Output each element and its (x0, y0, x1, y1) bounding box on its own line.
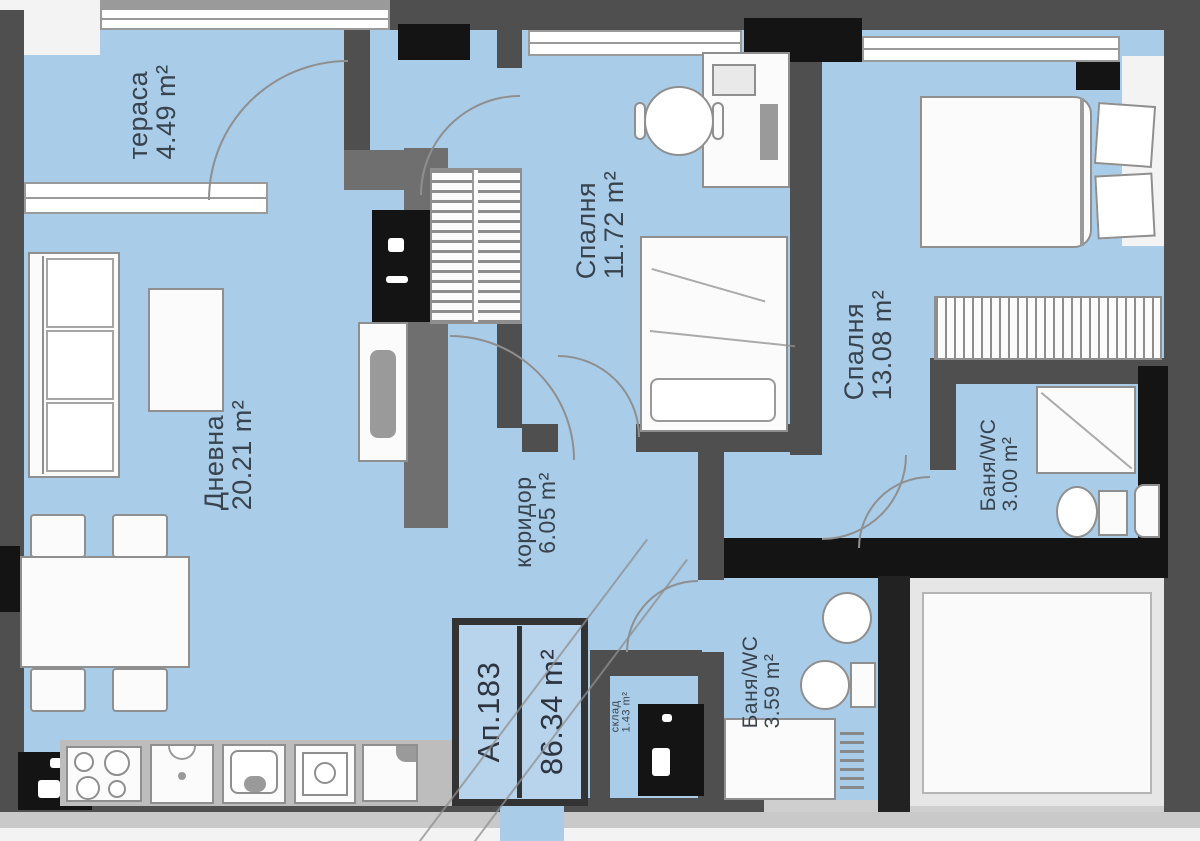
hall-wardrobe-divider (472, 170, 478, 322)
wall-top-band (100, 0, 390, 8)
sink-drain (244, 776, 266, 792)
label-storage: склад 1.43 m² (611, 692, 634, 733)
dining-table (20, 556, 190, 668)
sink-bath1 (1134, 484, 1160, 538)
wall-bedroom1-left-stub (497, 30, 522, 68)
bath2-threshold (840, 732, 864, 794)
terrace-area: 4.49 m² (152, 64, 180, 159)
storage-area: 1.43 m² (622, 692, 633, 733)
outside-bottom-white (0, 828, 1200, 841)
desk-item (760, 104, 778, 160)
shaft-kitchen-mark2 (38, 780, 60, 798)
desk-chair-armrest (712, 102, 724, 140)
dining-chair (112, 668, 168, 712)
wall-storage-left (590, 676, 610, 806)
sofa-cushion (46, 402, 114, 472)
stove-burner (76, 776, 100, 800)
wall-bath2-left-a (698, 452, 724, 580)
terrace-top-railing (100, 8, 390, 30)
neighbor-room-inner (922, 592, 1152, 794)
bedroom2-wardrobe (934, 296, 1162, 360)
outside-bottom-strip (0, 812, 1200, 828)
shaft-storage-mark2 (662, 714, 672, 722)
sofa-backrest (32, 256, 44, 474)
wall-left (0, 10, 24, 812)
dining-chair (112, 514, 168, 558)
terrace-name: тераса (124, 64, 152, 159)
sink-bath2 (822, 592, 872, 644)
worktop-item (396, 746, 416, 762)
bed2-headline (1080, 98, 1084, 246)
wall-black-top-a (398, 24, 470, 60)
label-bedroom2: Спалня 13.08 m² (840, 290, 896, 401)
bath1-area: 3.00 m² (1000, 419, 1022, 512)
coffee-table (148, 288, 224, 412)
desk-monitor (712, 64, 756, 96)
sofa-cushion (46, 330, 114, 400)
bed2-pillow (1094, 173, 1155, 240)
dining-chair (30, 668, 86, 712)
wall-bath1-left (930, 384, 956, 470)
desk-chair-armrest (634, 102, 646, 140)
tv-set (370, 350, 396, 438)
label-corridor: коридор 6.05 m² (512, 472, 560, 567)
bedroom1-name: Спалня (572, 171, 600, 280)
shaft-hall (372, 210, 432, 322)
floor-plan: Ап.183 86.34 m² тераса 4.49 m² Дневна 20… (0, 0, 1200, 841)
bedroom1-area: 11.72 m² (600, 171, 628, 280)
stove-burner (108, 780, 126, 798)
shaft-hall-mark2 (386, 276, 408, 283)
corridor-name: коридор (512, 472, 536, 567)
bath2-area: 3.59 m² (762, 636, 784, 729)
shaft-hall-mark (388, 238, 404, 252)
bath1-name: Баня/WC (978, 419, 1000, 512)
wall-left-accent (0, 546, 20, 612)
wall-bath1-top (930, 358, 1168, 384)
corridor-area: 6.05 m² (536, 472, 560, 567)
label-bath2: Баня/WC 3.59 m² (740, 636, 784, 729)
wall-hall-corner (344, 150, 406, 190)
toilet-bath1-bowl (1056, 486, 1098, 538)
bedroom2-name: Спалня (840, 290, 868, 401)
living-area: 20.21 m² (228, 400, 256, 511)
bed-bedroom2 (920, 96, 1092, 248)
toilet-bath2-bowl (800, 660, 850, 710)
wall-black-bar (724, 538, 1168, 578)
window-bedroom2 (862, 36, 1120, 62)
apartment-area-label: 86.34 m² (536, 649, 568, 775)
bed2-pillow (1094, 102, 1156, 168)
tub-bath2 (724, 718, 836, 800)
bath2-name: Баня/WC (740, 636, 762, 729)
toilet-bath2-tank (850, 662, 876, 708)
wall-neighbor-left (878, 576, 910, 812)
label-bath1: Баня/WC 3.00 m² (978, 419, 1022, 512)
toilet-bath1-tank (1098, 490, 1128, 536)
label-bedroom1: Спалня 11.72 m² (572, 171, 628, 280)
living-name: Дневна (200, 400, 228, 511)
wall-right (1164, 0, 1200, 812)
desk-chair (644, 86, 714, 156)
sofa-cushion (46, 258, 114, 328)
cooktop-ring (314, 762, 336, 784)
cabinet-knob (178, 772, 186, 780)
label-terrace: тераса 4.49 m² (124, 64, 180, 159)
stove-burner (74, 752, 94, 772)
label-living: Дневна 20.21 m² (200, 400, 256, 511)
dining-chair (30, 514, 86, 558)
wall-bedrooms-divider (790, 12, 822, 455)
stove-burner (104, 750, 130, 776)
bed1-pillow (650, 378, 776, 422)
bedroom2-area: 13.08 m² (868, 290, 896, 401)
shaft-storage-mark (652, 748, 670, 776)
